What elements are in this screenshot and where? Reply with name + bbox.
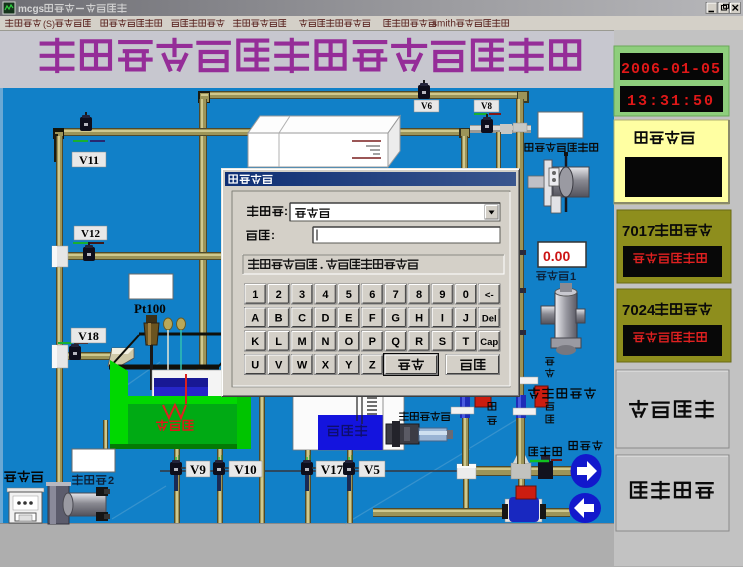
svg-text:7024: 7024 bbox=[622, 302, 656, 319]
svg-text:Q: Q bbox=[391, 336, 400, 348]
svg-text:7017: 7017 bbox=[622, 223, 655, 240]
svg-text:Z: Z bbox=[369, 360, 376, 372]
svg-text:4: 4 bbox=[322, 289, 329, 301]
svg-text:1: 1 bbox=[252, 289, 258, 301]
svg-text:V18: V18 bbox=[78, 329, 99, 343]
svg-text:3: 3 bbox=[299, 289, 305, 301]
svg-text:L: L bbox=[275, 336, 282, 348]
svg-text:0.00: 0.00 bbox=[543, 248, 570, 264]
svg-text:V17: V17 bbox=[321, 462, 344, 477]
svg-text:J: J bbox=[463, 313, 469, 325]
svg-text:F: F bbox=[369, 313, 376, 325]
svg-text:8: 8 bbox=[416, 289, 422, 301]
svg-text:X: X bbox=[322, 360, 330, 372]
svg-text:9: 9 bbox=[439, 289, 445, 301]
svg-text:U: U bbox=[251, 360, 259, 372]
svg-text:H: H bbox=[415, 313, 423, 325]
svg-text:13:31:50: 13:31:50 bbox=[627, 93, 715, 110]
svg-text:V11: V11 bbox=[79, 153, 99, 167]
svg-text:V8: V8 bbox=[481, 101, 492, 111]
svg-text:W: W bbox=[297, 360, 308, 372]
svg-text:7: 7 bbox=[393, 289, 399, 301]
svg-text:Pt100: Pt100 bbox=[134, 301, 166, 316]
svg-text:2: 2 bbox=[276, 289, 282, 301]
svg-text:1: 1 bbox=[570, 271, 576, 283]
svg-text:C: C bbox=[298, 313, 306, 325]
svg-text:V9: V9 bbox=[190, 462, 206, 477]
svg-text:R: R bbox=[415, 336, 423, 348]
svg-text:mcgs: mcgs bbox=[18, 4, 45, 15]
svg-text:V6: V6 bbox=[421, 101, 432, 111]
svg-text::: : bbox=[271, 228, 275, 242]
svg-text:Y: Y bbox=[345, 360, 353, 372]
svg-text:E: E bbox=[345, 313, 352, 325]
svg-text:N: N bbox=[321, 336, 329, 348]
svg-text:M: M bbox=[297, 336, 306, 348]
svg-text:V5: V5 bbox=[364, 462, 380, 477]
svg-text:V12: V12 bbox=[81, 228, 100, 240]
svg-text:G: G bbox=[391, 313, 400, 325]
svg-text:Del: Del bbox=[482, 314, 497, 325]
svg-text:V10: V10 bbox=[234, 462, 256, 477]
svg-text:6: 6 bbox=[369, 289, 375, 301]
svg-text:smith: smith bbox=[432, 19, 456, 30]
svg-text:0: 0 bbox=[463, 289, 469, 301]
svg-text:A: A bbox=[251, 313, 259, 325]
svg-text:D: D bbox=[321, 313, 329, 325]
svg-text:<-: <- bbox=[485, 290, 494, 301]
svg-text:2: 2 bbox=[108, 475, 114, 487]
svg-text:T: T bbox=[462, 336, 469, 348]
svg-text:5: 5 bbox=[346, 289, 352, 301]
svg-text:S: S bbox=[439, 336, 446, 348]
svg-text:B: B bbox=[275, 313, 283, 325]
svg-text:I: I bbox=[441, 313, 444, 325]
svg-text:Cap: Cap bbox=[480, 337, 498, 348]
svg-text:O: O bbox=[345, 336, 354, 348]
svg-text::: : bbox=[284, 204, 288, 218]
svg-text:2006-01-05: 2006-01-05 bbox=[621, 61, 721, 78]
svg-text:P: P bbox=[369, 336, 376, 348]
svg-text:V: V bbox=[275, 360, 283, 372]
svg-text:(S): (S) bbox=[43, 19, 55, 29]
svg-text:K: K bbox=[251, 336, 259, 348]
